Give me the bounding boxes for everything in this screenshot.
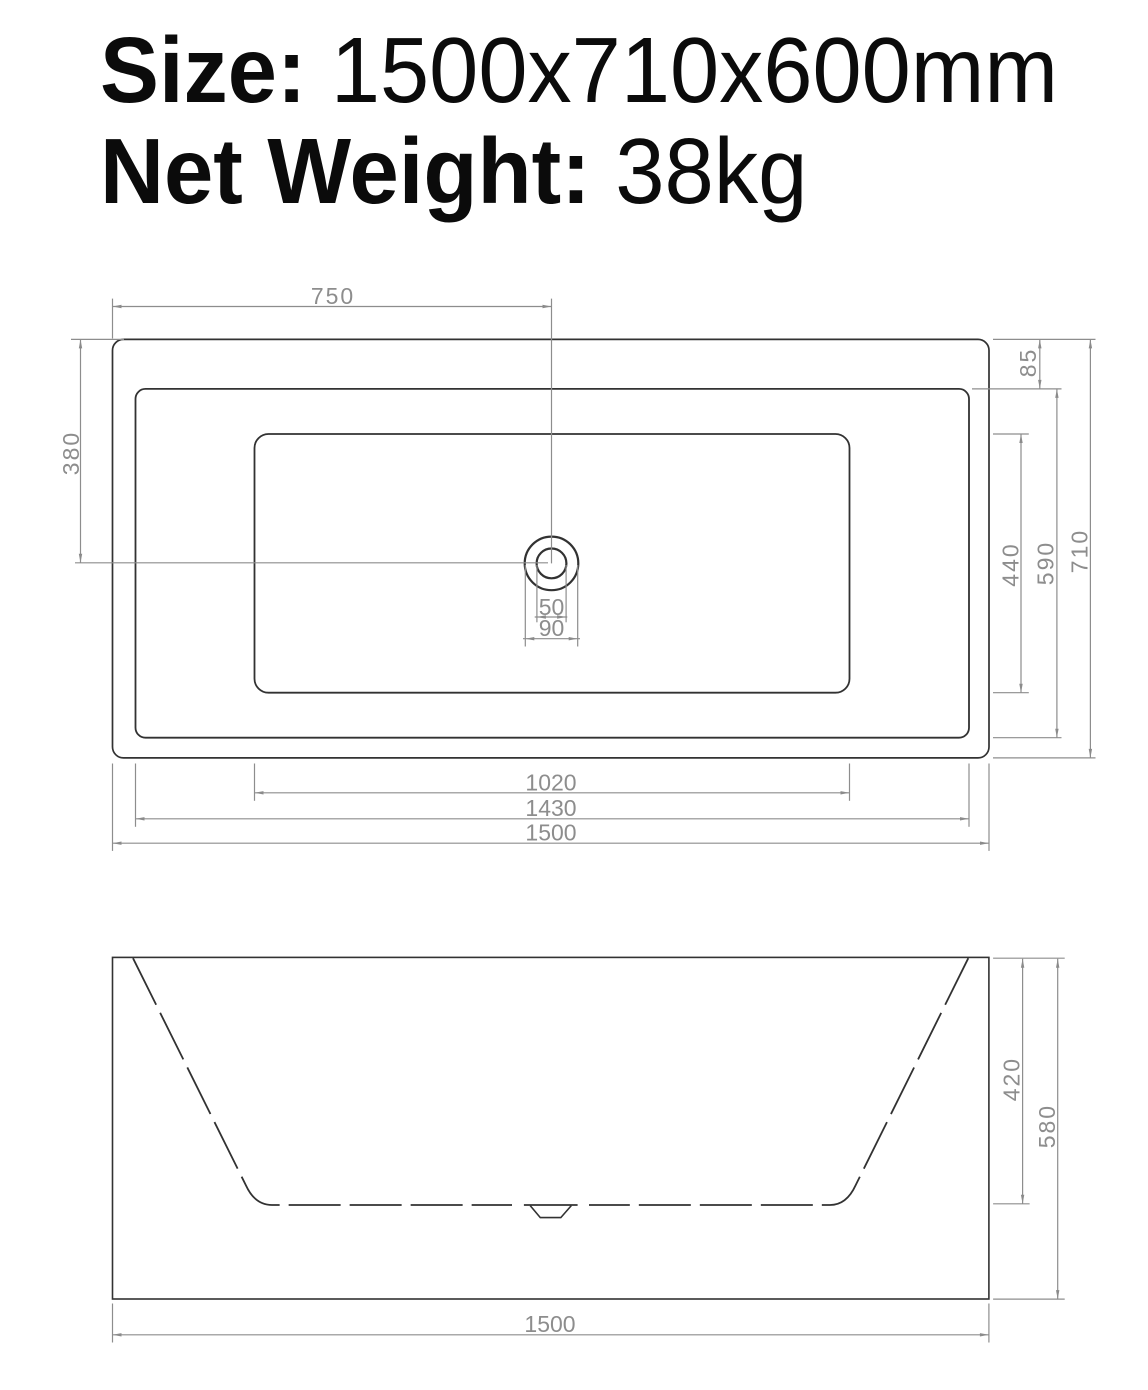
svg-text:1500: 1500 xyxy=(524,1311,575,1337)
svg-text:1020: 1020 xyxy=(525,769,576,795)
svg-text:440: 440 xyxy=(998,542,1024,586)
svg-text:580: 580 xyxy=(1034,1104,1060,1148)
svg-text:90: 90 xyxy=(539,615,565,641)
svg-text:1430: 1430 xyxy=(525,795,576,821)
svg-text:420: 420 xyxy=(999,1057,1025,1101)
svg-text:85: 85 xyxy=(1015,348,1041,378)
svg-text:590: 590 xyxy=(1033,541,1059,585)
svg-text:710: 710 xyxy=(1067,529,1093,573)
svg-text:750: 750 xyxy=(311,283,355,309)
svg-text:380: 380 xyxy=(58,431,84,475)
svg-text:1500: 1500 xyxy=(525,819,576,845)
